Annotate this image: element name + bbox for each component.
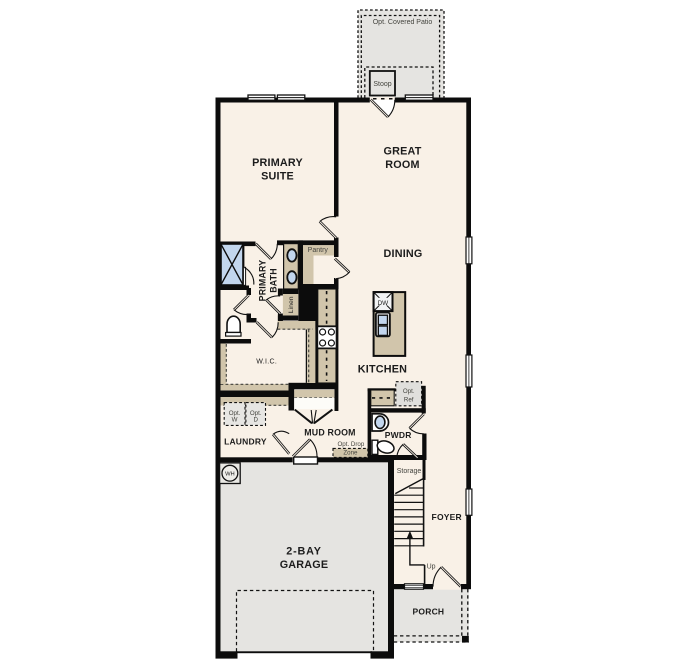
svg-text:Up: Up	[427, 564, 436, 571]
svg-text:PWDR: PWDR	[385, 430, 412, 440]
svg-text:W: W	[232, 417, 238, 424]
svg-text:W.I.C.: W.I.C.	[256, 358, 277, 365]
svg-text:BATH: BATH	[268, 268, 278, 293]
svg-text:Opt.: Opt.	[403, 388, 415, 395]
svg-text:2-BAY: 2-BAY	[286, 545, 321, 557]
svg-text:DW: DW	[378, 300, 390, 307]
svg-text:Opt. Drop: Opt. Drop	[337, 441, 364, 448]
svg-text:FOYER: FOYER	[432, 512, 462, 522]
svg-text:WH: WH	[225, 472, 235, 478]
svg-text:PRIMARY: PRIMARY	[252, 157, 303, 169]
svg-text:Linen: Linen	[288, 296, 295, 313]
svg-text:ROOM: ROOM	[385, 159, 419, 171]
svg-text:GREAT: GREAT	[384, 146, 422, 158]
svg-text:KITCHEN: KITCHEN	[358, 363, 407, 375]
svg-text:Storage: Storage	[397, 468, 422, 475]
svg-text:GARAGE: GARAGE	[280, 559, 329, 571]
svg-text:PRIMARY: PRIMARY	[258, 260, 268, 302]
svg-text:Opt. Covered Patio: Opt. Covered Patio	[373, 19, 433, 26]
svg-text:D: D	[253, 417, 258, 424]
svg-text:PORCH: PORCH	[413, 606, 445, 616]
svg-text:MUD ROOM: MUD ROOM	[304, 427, 355, 437]
svg-text:DINING: DINING	[384, 248, 423, 260]
svg-text:Zone: Zone	[343, 449, 358, 456]
svg-text:Pantry: Pantry	[308, 247, 329, 254]
svg-text:Ref: Ref	[404, 396, 414, 403]
svg-text:SUITE: SUITE	[261, 170, 294, 182]
svg-text:Stoop: Stoop	[373, 81, 391, 88]
svg-text:LAUNDRY: LAUNDRY	[224, 436, 267, 446]
